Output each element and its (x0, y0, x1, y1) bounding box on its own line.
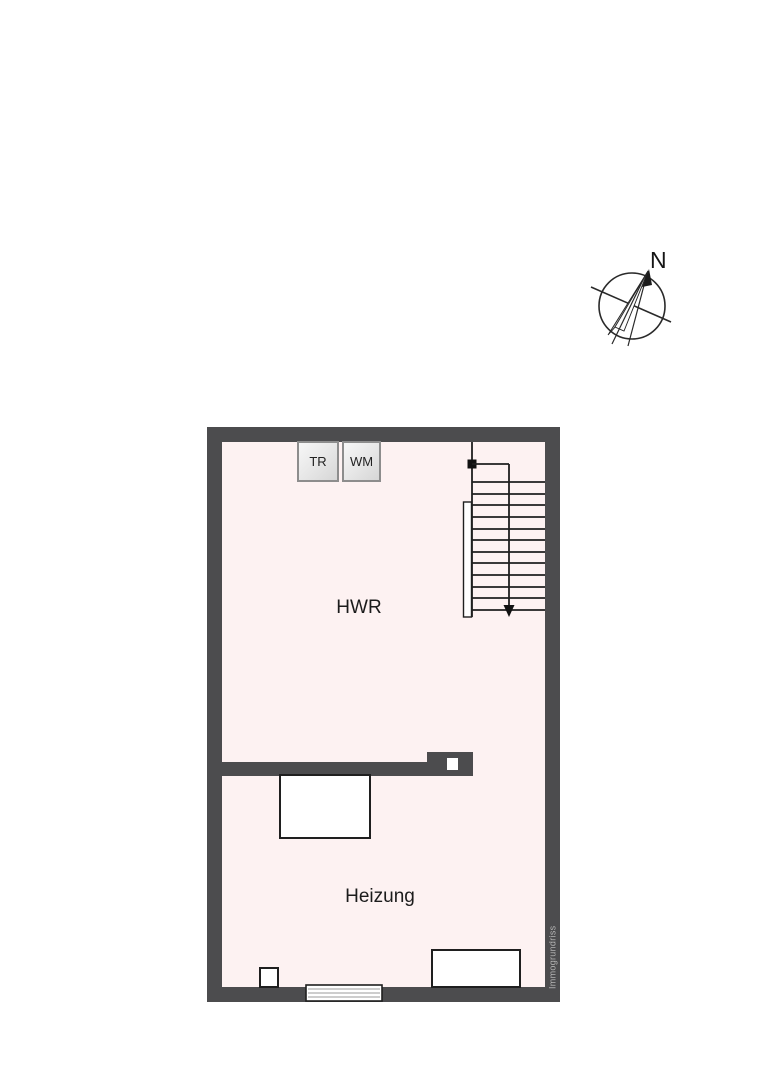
partition-wall (222, 762, 427, 776)
page-canvas: N (0, 0, 763, 1080)
room-label-hwr: HWR (304, 597, 414, 619)
floor-plan-drawing (207, 427, 560, 1002)
dryer-box: TR (297, 441, 339, 482)
equipment-rect-large (432, 950, 520, 987)
dryer-label: TR (309, 454, 326, 469)
floor-plan: TR WM HWR Heizung Immogrundriss (207, 427, 560, 1002)
window-symbol (306, 985, 382, 1001)
stair-handrail (464, 502, 472, 617)
chimney-flue (447, 758, 458, 770)
boiler-rect (280, 775, 370, 838)
washing-machine-box: WM (342, 441, 381, 482)
north-label: N (650, 247, 667, 273)
washing-machine-label: WM (350, 454, 373, 469)
compass-rose: N (585, 242, 685, 354)
equipment-rect-small (260, 968, 278, 987)
room-label-heizung: Heizung (325, 886, 435, 908)
watermark-text: Immogrundriss (545, 915, 560, 989)
